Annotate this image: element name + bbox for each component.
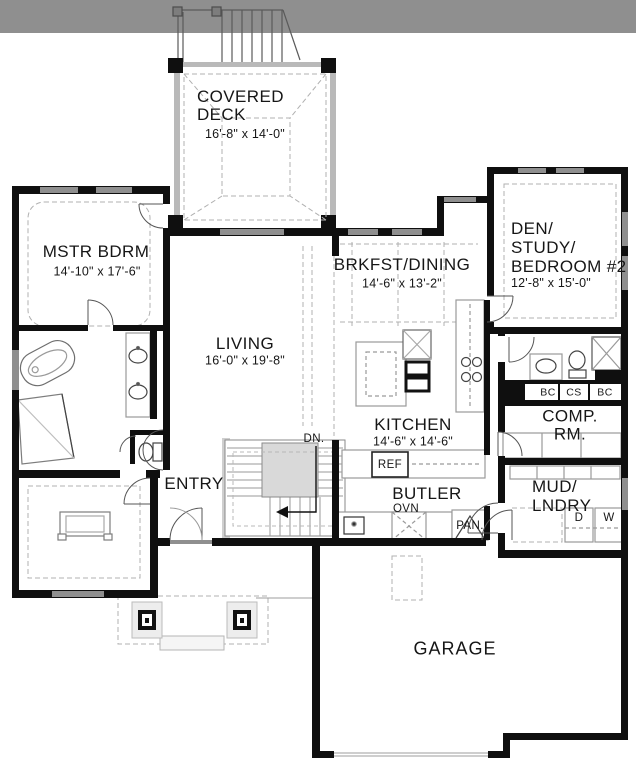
label-den-study: DEN/ STUDY/ BEDROOM #2 [511,219,626,276]
bench-seat [58,512,112,540]
label-pan: PAN. [456,520,484,532]
cooktop-counter [456,300,484,412]
bathtub [15,335,80,391]
toilet-master [139,443,162,461]
label-mud-lndry: MUD/ LNDRY [532,477,591,515]
label-dn: DN. [303,433,324,445]
label-ovn: OVN [393,503,419,515]
covered-deck-structure [168,58,336,230]
label-entry: ENTRY [164,475,223,493]
label-mstr-bdrm: MSTR BDRM [43,243,150,261]
dims-kitchen: 14'-6" x 14'-6" [373,435,453,449]
dims-covered-deck: 16'-8" x 14'-0" [205,128,285,142]
label-bc-right: BC [597,387,612,398]
label-dryer: D [575,512,584,524]
vanity-double-sink [126,333,150,417]
label-bc-left: BC [540,387,555,398]
porch-column [227,602,257,638]
label-living: LIVING [216,335,274,353]
label-covered-deck: COVERED DECK [197,88,284,125]
label-kitchen: KITCHEN [374,416,451,434]
label-brkfst-dining: BRKFST/DINING [334,256,471,274]
toilet-hall-bath [569,351,586,378]
label-comp-rm: COMP. RM. [537,408,603,445]
label-cs: CS [566,387,581,398]
x-cabinet [392,512,426,540]
master-bath-fixtures [15,333,162,540]
porch-column [132,602,162,638]
dims-mstr-bdrm: 14'-10" x 17'-6" [53,265,140,279]
floor-plan-page: COVERED DECK 16'-8" x 14'-0" MSTR BDRM 1… [0,0,636,768]
double-oven [406,362,429,391]
shower-stall [592,337,621,370]
tall-cabinet [403,330,431,359]
fridge-counter-row [342,450,485,478]
interior-stairs [222,438,345,538]
floor-plan-drawing [0,0,636,768]
walk-in-shower [18,394,74,464]
bath-sink [530,354,562,380]
label-butler: BUTLER [392,485,461,503]
dims-brkfst-dining: 14'-6" x 13'-2" [362,277,442,291]
dims-living: 16'-0" x 19'-8" [205,354,285,368]
garage-door-opening [334,753,488,756]
small-appliance [344,517,364,534]
top-photo-band [0,0,636,33]
label-garage: GARAGE [413,639,496,658]
dims-den-study: 12'-8" x 15'-0" [511,277,591,291]
label-washer: W [603,512,614,524]
kitchen-fixtures [342,300,485,478]
label-ref: REF [378,459,402,471]
front-porch [132,598,312,650]
